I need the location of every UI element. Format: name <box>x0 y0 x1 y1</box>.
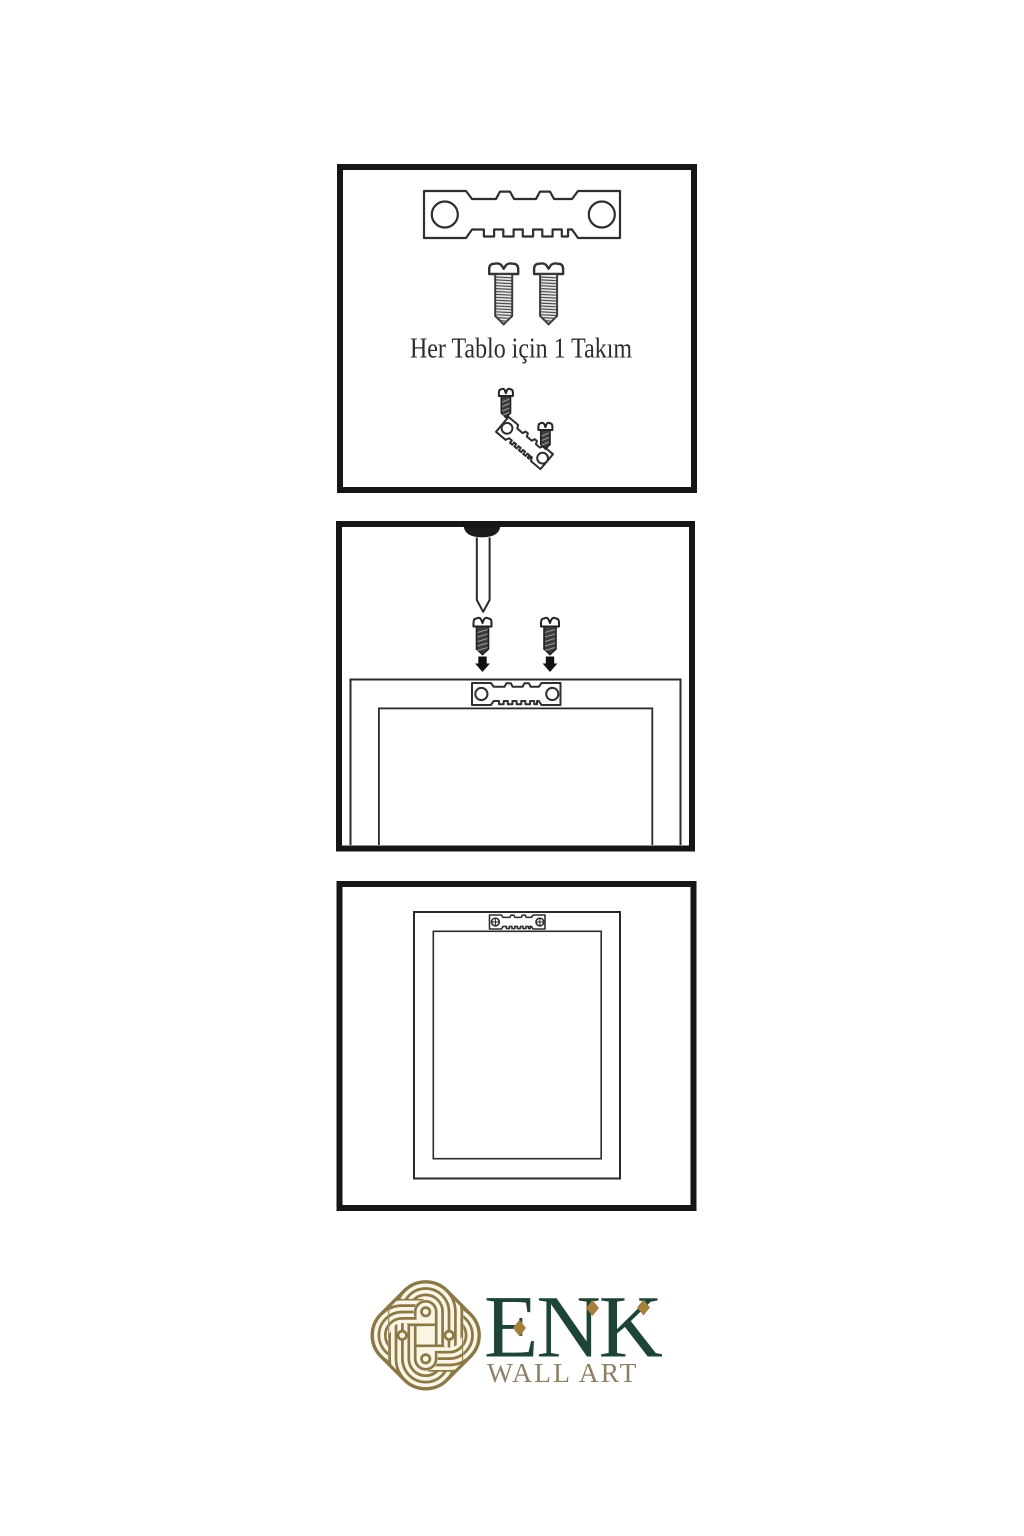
svg-text:WALL ART: WALL ART <box>487 1357 639 1388</box>
svg-text:Her Tablo için 1 Takım: Her Tablo için 1 Takım <box>410 334 632 365</box>
